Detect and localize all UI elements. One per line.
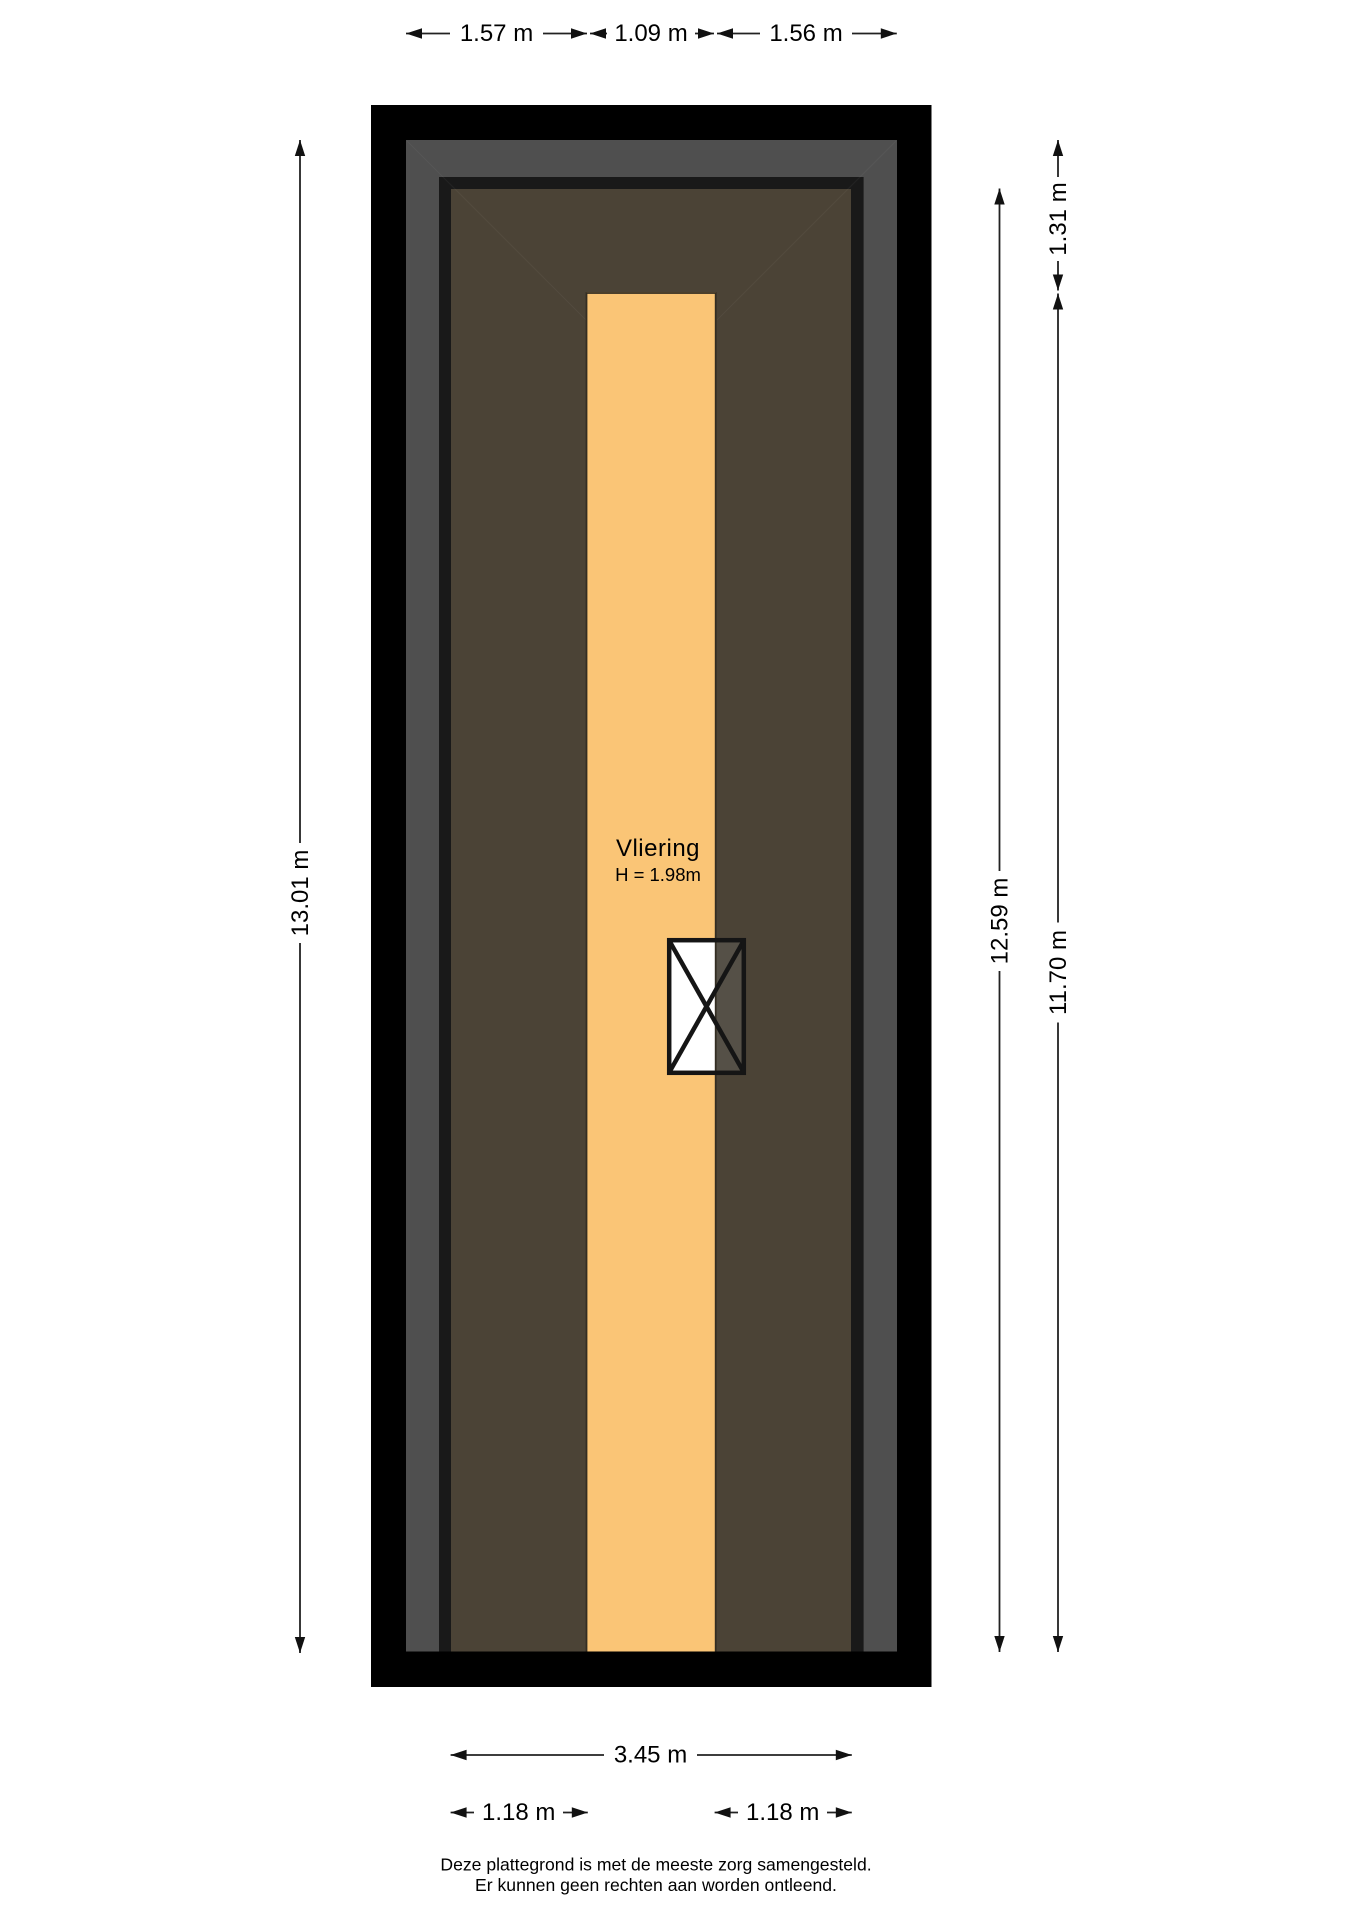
svg-text:1.18 m: 1.18 m (746, 1799, 819, 1826)
svg-text:11.70 m: 11.70 m (1045, 930, 1072, 1015)
svg-text:12.59 m: 12.59 m (987, 878, 1014, 965)
svg-text:13.01 m: 13.01 m (287, 850, 314, 937)
svg-text:Deze plattegrond is met de mee: Deze plattegrond is met de meeste zorg s… (440, 1855, 871, 1875)
svg-text:3.45 m: 3.45 m (614, 1742, 687, 1769)
svg-text:1.18 m: 1.18 m (482, 1799, 555, 1826)
svg-text:Er kunnen geen rechten aan wor: Er kunnen geen rechten aan worden ontlee… (475, 1875, 837, 1895)
svg-text:1.31 m: 1.31 m (1045, 182, 1072, 255)
svg-text:1.56 m: 1.56 m (769, 20, 842, 47)
svg-text:Vliering: Vliering (616, 835, 700, 862)
svg-text:1.09 m: 1.09 m (614, 20, 687, 47)
svg-text:H = 1.98m: H = 1.98m (615, 864, 701, 885)
svg-text:1.57 m: 1.57 m (460, 20, 533, 47)
